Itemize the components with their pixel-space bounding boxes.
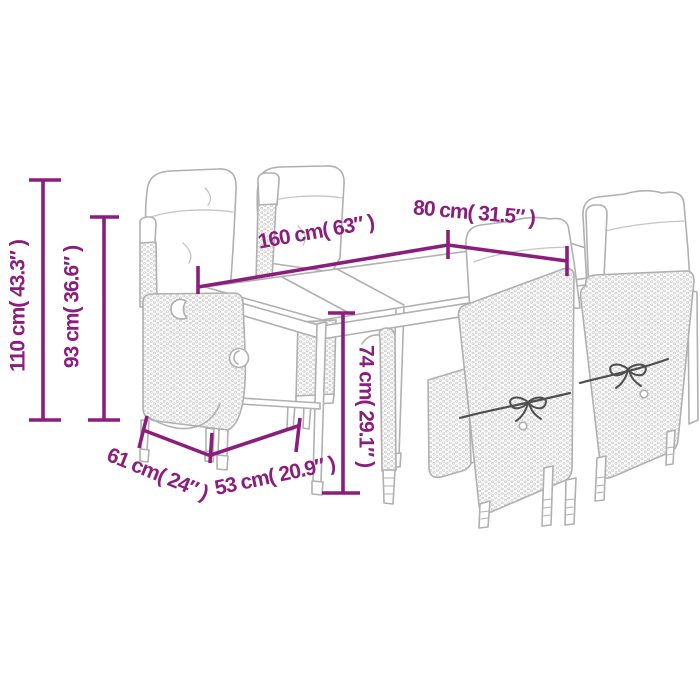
armrest-foot — [383, 470, 395, 504]
dimension-label: 80 cm( 31.5″ ) — [412, 196, 536, 230]
dimension-110: 110 cm( 43.3″ ) — [7, 180, 61, 420]
dimension-label: 93 cm( 36.6″ ) — [61, 246, 84, 368]
dimension-label: 61 cm( 24″ ) — [104, 443, 211, 504]
chair-front-right — [565, 191, 698, 525]
armrest-curl — [362, 335, 379, 344]
furniture-illustration — [140, 166, 698, 528]
dimension-61: 61 cm( 24″ ) — [104, 416, 212, 505]
chair-leg — [479, 501, 490, 528]
table-foot — [217, 455, 228, 470]
chair-post-cap — [258, 173, 279, 206]
chair-leg — [542, 466, 553, 526]
dining-table — [205, 239, 650, 495]
armrest-post — [379, 328, 396, 471]
chair-post-cap — [140, 217, 156, 244]
chair-back-panel — [458, 268, 574, 513]
chair-leg — [595, 456, 606, 501]
dimension-label: 74 cm( 29.1″ ) — [354, 345, 377, 467]
chair-leg — [565, 478, 576, 525]
dimension-line — [88, 217, 120, 420]
diagram-canvas: 110 cm( 43.3″ ) 93 cm( 36.6″ ) 160 cm( 6… — [0, 0, 700, 700]
cushion-button — [519, 422, 527, 430]
dimension-line — [29, 180, 61, 420]
dimension-93: 93 cm( 36.6″ ) — [61, 217, 120, 420]
product-dimension-diagram: 110 cm( 43.3″ ) 93 cm( 36.6″ ) 160 cm( 6… — [0, 0, 700, 700]
cushion-button — [640, 390, 648, 398]
dimension-label: 110 cm( 43.3″ ) — [7, 240, 30, 372]
chair-cushion — [146, 169, 237, 299]
table-foot — [312, 481, 323, 495]
